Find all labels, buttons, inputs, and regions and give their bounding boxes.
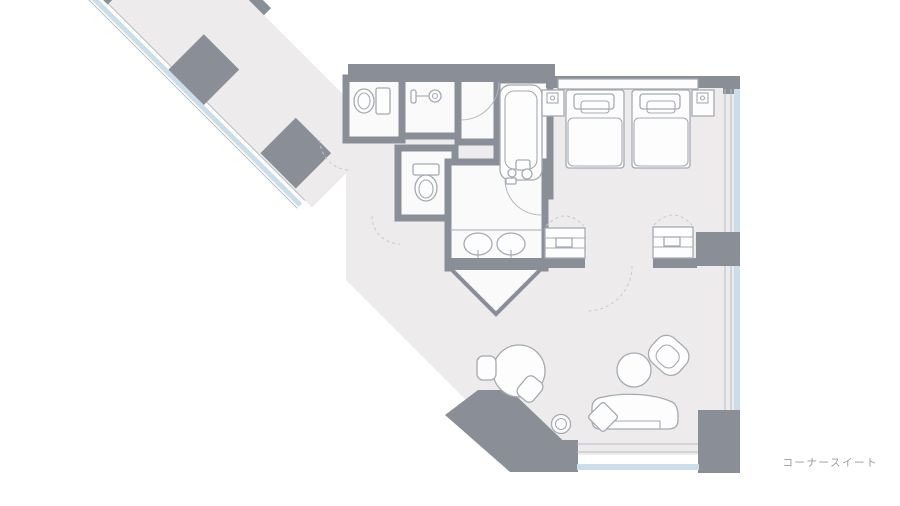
bath-spout bbox=[506, 178, 516, 184]
bath-knob-2 bbox=[522, 169, 532, 179]
bench-2-handle bbox=[664, 237, 680, 246]
headboard-panel bbox=[558, 79, 698, 89]
bottom-window-glass bbox=[577, 464, 699, 470]
chaise-lounge-icon bbox=[587, 394, 678, 432]
twin-bed-2 bbox=[632, 90, 690, 168]
nightstand-left bbox=[542, 90, 564, 116]
bottom-left-step bbox=[540, 440, 578, 472]
toilet-1-tank bbox=[376, 88, 390, 114]
corner-suite-floor-plan: コーナースイート bbox=[0, 0, 900, 506]
bath-hall bbox=[458, 78, 497, 142]
vanity-front-wall bbox=[448, 258, 545, 268]
dining-chair-1 bbox=[477, 356, 496, 380]
shower-head bbox=[429, 90, 441, 102]
toilet-2-bowl bbox=[415, 175, 437, 201]
plan-title-label: コーナースイート bbox=[783, 457, 878, 469]
bath-knob-1 bbox=[508, 169, 516, 177]
toilet-2-tank bbox=[413, 164, 439, 175]
bedroom-window-glass bbox=[734, 89, 740, 232]
pillar-right-mid bbox=[696, 232, 740, 266]
partition-bedroom-right bbox=[653, 258, 697, 268]
shower-room bbox=[402, 78, 458, 136]
top-wall-bath-block bbox=[348, 64, 555, 82]
toilet-room-1 bbox=[346, 78, 402, 140]
pillar-bottom-right bbox=[698, 410, 740, 473]
shower-bracket bbox=[411, 90, 416, 103]
side-stool-icon bbox=[552, 415, 571, 434]
bench-1-handle bbox=[556, 238, 572, 247]
floorplan-canvas: コーナースイート bbox=[0, 0, 900, 506]
living-window-glass bbox=[734, 266, 740, 410]
bathtub-icon bbox=[500, 85, 542, 184]
toilet-2-icon bbox=[413, 164, 439, 201]
nightstand-right bbox=[692, 90, 714, 116]
partition-bedroom-left bbox=[545, 258, 585, 268]
coffee-table-icon bbox=[617, 353, 651, 387]
twin-bed-1 bbox=[566, 90, 624, 168]
